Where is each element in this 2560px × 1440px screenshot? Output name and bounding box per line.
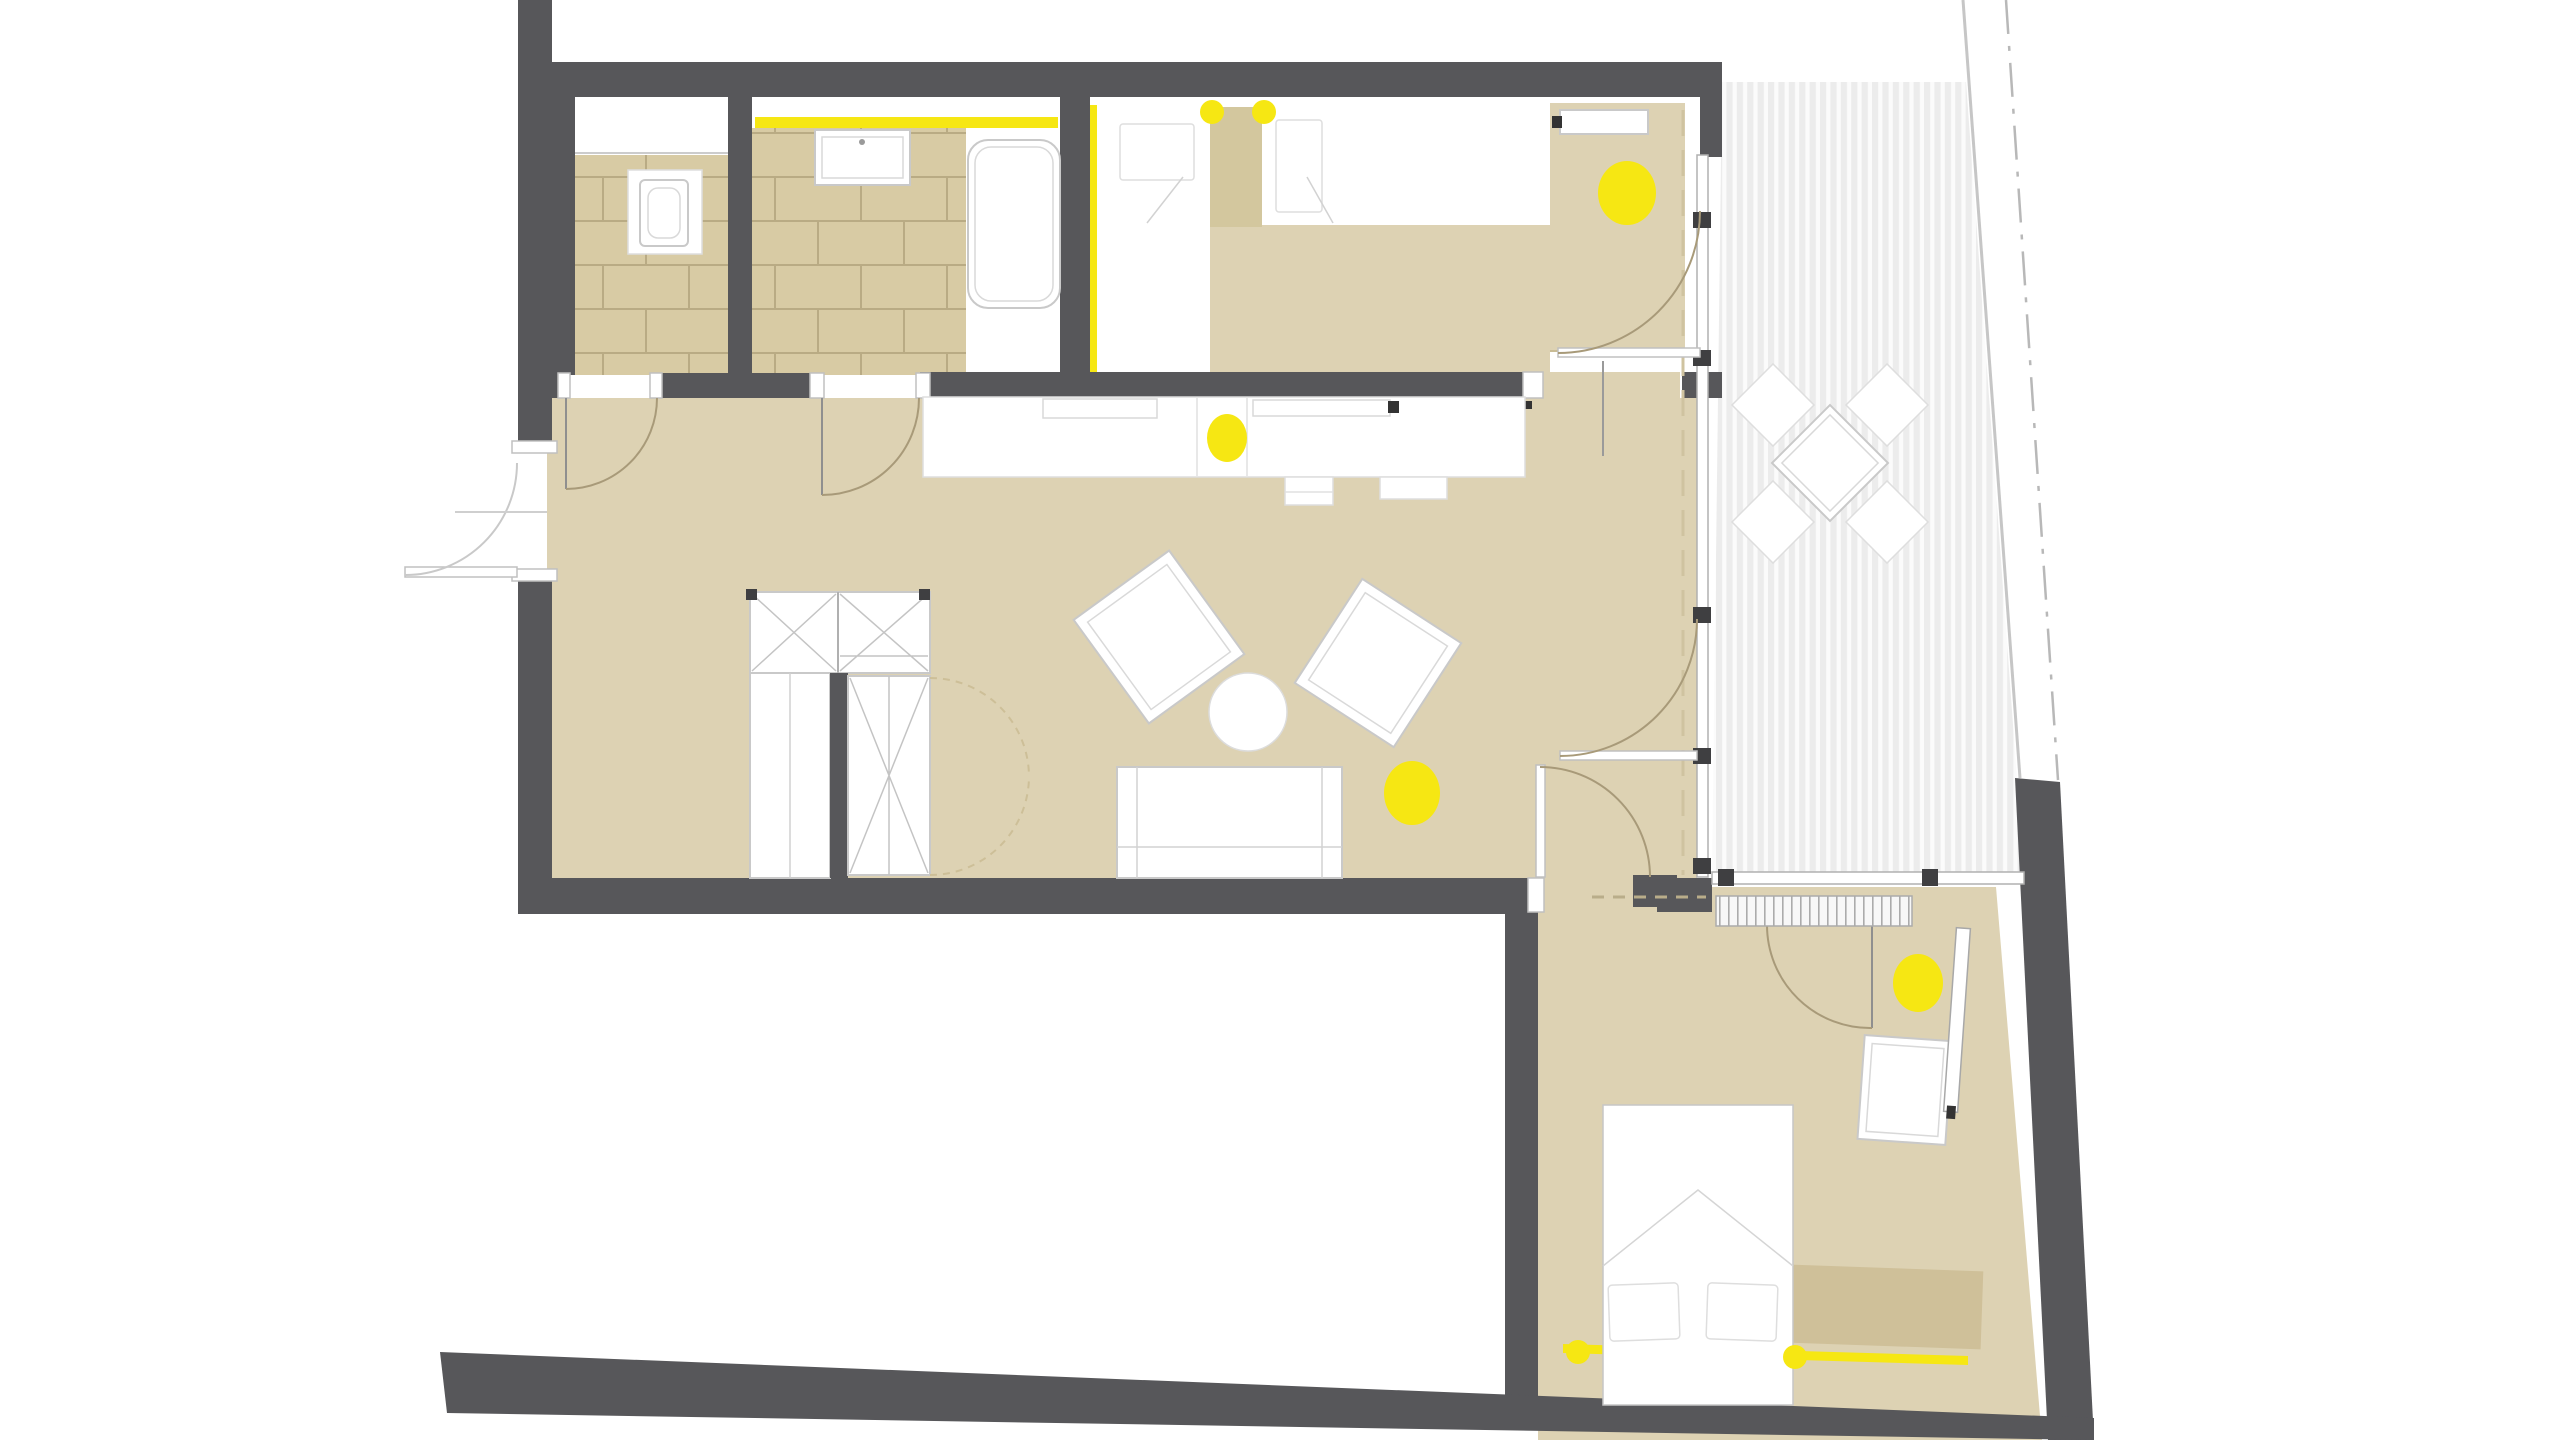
facade-hinge-1 — [1693, 212, 1711, 228]
floor-plan-drawing — [0, 0, 2560, 1440]
terrace-window-hinge-2 — [1922, 869, 1938, 886]
entry-door-swing — [405, 463, 517, 575]
floor-bedroom1-carpet — [1210, 225, 1550, 372]
floor-plan-page — [0, 0, 2560, 1440]
wall-wc-bath — [728, 97, 752, 375]
bedroom2-rug — [1789, 1265, 1984, 1350]
window-facade-right — [1697, 155, 1708, 877]
floor-bedroom1-closet — [1550, 103, 1685, 351]
x-wardrobe-post-right — [919, 589, 930, 600]
stove-tick — [1388, 401, 1399, 413]
facade-hinge-5 — [1693, 858, 1711, 874]
wall-living-bottom — [547, 878, 1532, 914]
light-kitchen-counter — [1207, 414, 1247, 462]
x-wardrobe-top — [750, 592, 930, 673]
bed1-pillow-right — [1276, 120, 1322, 212]
living-terrace-door-leaf — [1560, 751, 1697, 760]
bedroom1-terrace-door-leaf — [1558, 348, 1700, 357]
wall-left-lower — [518, 573, 552, 914]
washbasin — [815, 130, 910, 185]
wc-jamb-right — [650, 373, 662, 398]
bed2-pillow-right — [1706, 1283, 1778, 1341]
strip-bathroom — [755, 117, 1058, 128]
radiator-valve — [1946, 1106, 1956, 1120]
sofa — [1117, 767, 1342, 878]
wall-bath-bedroom1 — [1060, 97, 1090, 372]
counter-stool-2 — [1380, 477, 1447, 499]
floor-bedroom1-doorway — [1543, 372, 1680, 400]
window-terrace-bottom — [1712, 872, 2024, 884]
wall-bedroom2-left — [1505, 912, 1538, 1406]
bed1-pillow-left — [1120, 124, 1194, 180]
washbasin-drain — [859, 139, 865, 145]
closet-shelf — [1560, 110, 1648, 134]
wall-bathblock-bottom-b — [655, 373, 813, 398]
boundary-line-dashdot — [2006, 0, 2058, 780]
bed2-pillow-left — [1608, 1283, 1680, 1341]
closet-shelf-tick — [1552, 116, 1562, 128]
light-bedroom2-strip-a — [1566, 1340, 1590, 1364]
light-bed1-right — [1252, 100, 1276, 124]
bathtub — [968, 140, 1060, 308]
light-bedroom2 — [1893, 954, 1943, 1012]
wall-pillar-corridor — [1633, 875, 1677, 907]
terrace-window-hinge-1 — [1718, 869, 1734, 886]
toilet — [640, 180, 688, 246]
light-living — [1384, 761, 1440, 825]
bedroom2-desk — [1857, 1035, 1952, 1145]
bed1-duvet — [1210, 107, 1262, 227]
light-bedroom1-closet — [1598, 161, 1656, 225]
wall-kitchen-bedroom1 — [920, 372, 1525, 398]
bedroom2-wardrobe — [1716, 896, 1912, 926]
wall-facade-stub-top — [1700, 97, 1722, 157]
bedroom2-bed — [1603, 1105, 1793, 1405]
bath-jamb-left — [810, 373, 824, 398]
living-wall-cap — [1528, 878, 1544, 912]
x-wardrobe-dark-bar — [830, 673, 848, 878]
round-side-table — [1209, 673, 1287, 751]
light-bed1-left — [1200, 100, 1224, 124]
bath-jamb-right — [916, 373, 930, 398]
kitchen-wall-cap — [1523, 372, 1543, 398]
entry-door-leaf — [405, 567, 517, 577]
bed2-body — [1603, 1105, 1793, 1405]
bedroom2-corridor-door-leaf — [1536, 765, 1545, 877]
sofa-body — [1117, 767, 1342, 878]
wall-top — [518, 62, 1722, 97]
light-bedroom2-strip-b — [1783, 1345, 1807, 1369]
entry-jamb-bottom — [512, 569, 557, 581]
x-wardrobe-post-left — [746, 589, 757, 600]
wc-jamb-left — [558, 373, 570, 398]
counter-stool-1 — [1285, 477, 1333, 505]
wall-left-wc-lining — [552, 97, 575, 375]
entry-jamb-top — [512, 441, 557, 453]
wc-niche — [575, 97, 728, 155]
facade-hinge-3 — [1693, 607, 1711, 623]
